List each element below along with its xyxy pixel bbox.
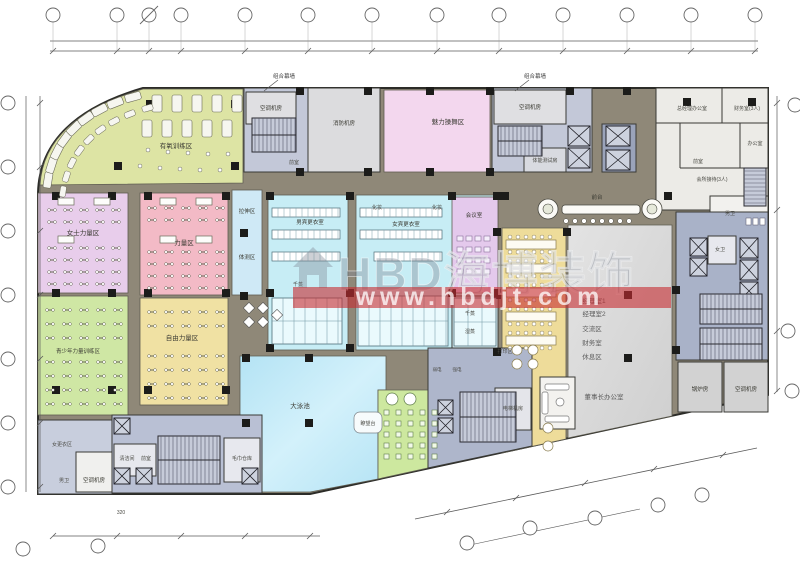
bike-marker [206, 152, 210, 156]
column-marker [683, 98, 691, 106]
desk-chair [516, 322, 520, 326]
equipment-mark [86, 323, 89, 326]
label-fire-room: 消防机房 [333, 119, 356, 127]
label-vestibule-ne: 前室 [693, 158, 703, 165]
equipment-mark [80, 309, 83, 312]
equipment-mark [64, 247, 67, 250]
equipment-mark [97, 389, 100, 392]
equipment-mark [222, 219, 225, 222]
label-men-wc-sw: 男卫 [59, 478, 69, 484]
grid-bubble [651, 498, 665, 512]
meeting-chair [484, 236, 490, 241]
label-gm-office: 总经理办公室 [677, 105, 707, 112]
equipment-mark [154, 325, 157, 328]
equipment-mark [165, 369, 168, 372]
equipment-mark [165, 219, 168, 222]
grid-bubble [1, 160, 15, 174]
equipment-mark [222, 207, 225, 210]
grid-bubble [301, 8, 315, 22]
desk-chair [524, 235, 528, 239]
column-marker [364, 168, 372, 176]
equipment-mark [188, 355, 191, 358]
treadmill [212, 95, 222, 112]
equipment-mark [102, 247, 105, 250]
leisure-chair [420, 443, 425, 448]
equipment-mark [112, 271, 115, 274]
grid-bubble [46, 8, 60, 22]
equipment-mark [188, 219, 191, 222]
column-marker [266, 344, 274, 352]
equipment-mark [46, 389, 49, 392]
equipment-mark [80, 375, 83, 378]
column-marker [426, 87, 434, 95]
stool [627, 219, 632, 224]
equipment-mark [222, 287, 225, 290]
desk-row [506, 336, 556, 345]
equipment-mark [165, 383, 168, 386]
equipment-mark [182, 397, 185, 400]
column-marker [240, 292, 248, 300]
equipment-mark [46, 309, 49, 312]
equipment-mark [205, 369, 208, 372]
grid-bubble [16, 542, 30, 556]
grid-bubble [91, 539, 105, 553]
round-table [512, 359, 522, 369]
equipment-mark [182, 275, 185, 278]
leisure-chair [420, 410, 425, 415]
column-marker [108, 289, 116, 297]
stool [564, 219, 569, 224]
equipment-mark [86, 209, 89, 212]
equipment-mark [114, 375, 117, 378]
equipment-mark [70, 221, 73, 224]
treadmill [222, 120, 232, 137]
equipment-mark [205, 251, 208, 254]
equipment-mark [69, 337, 72, 340]
equipment-mark [222, 325, 225, 328]
equipment-mark [165, 311, 168, 314]
desk-row [506, 312, 556, 321]
stool [609, 219, 614, 224]
equipment-mark [80, 271, 83, 274]
equipment-mark [148, 397, 151, 400]
label-ac-sw: 空调机房 [83, 476, 106, 484]
zone-label-stretch: 拉伸区 [239, 207, 256, 215]
zone-label-women-strength: 女士力量区 [67, 228, 100, 237]
stool [618, 219, 623, 224]
column-marker [623, 87, 631, 95]
column-marker [231, 162, 239, 170]
meeting-chair [475, 236, 481, 241]
round-table [528, 359, 538, 369]
equipment-mark [199, 355, 202, 358]
equipment-mark [86, 309, 89, 312]
round-table [512, 345, 522, 355]
equipment-mark [103, 323, 106, 326]
equipment-mark [148, 311, 151, 314]
equipment-mark [96, 283, 99, 286]
meeting-chair [466, 236, 472, 241]
label-strong-elec: 强电 [453, 366, 462, 373]
equipment-mark [171, 219, 174, 222]
zone-label-pool: 大泳池 [290, 401, 310, 410]
equipment-mark [205, 383, 208, 386]
treadmill [182, 120, 192, 137]
planter [647, 204, 657, 214]
equipment-mark [165, 207, 168, 210]
grid-bubble [556, 8, 570, 22]
equipment-mark [86, 271, 89, 274]
equipment-mark [205, 287, 208, 290]
equipment-mark [118, 283, 121, 286]
equipment-mark [154, 397, 157, 400]
equipment-mark [48, 221, 51, 224]
equipment-mark [118, 247, 121, 250]
bike-marker [158, 166, 162, 170]
watermark: HBD海博装饰 www.hbdjt.com [293, 247, 671, 311]
equipment-mark [154, 275, 157, 278]
column-marker [305, 354, 313, 362]
equipment-mark [102, 259, 105, 262]
zone-label-men-locker: 男宾更衣室 [296, 218, 324, 226]
leisure-chair [396, 432, 401, 437]
room-ac-sw [76, 452, 112, 492]
round-table [543, 423, 553, 433]
grid-bubble [588, 511, 602, 525]
equipment-mark [222, 369, 225, 372]
equipment-mark [199, 207, 202, 210]
machine [196, 236, 212, 243]
equipment-mark [199, 397, 202, 400]
equipment-mark [80, 323, 83, 326]
equipment-mark [97, 375, 100, 378]
wc-stall [746, 218, 751, 225]
equipment-mark [171, 207, 174, 210]
zone-label-meeting: 会议室 [466, 211, 483, 219]
equipment-mark [148, 275, 151, 278]
equipment-mark [112, 247, 115, 250]
grid-bubble [1, 288, 15, 302]
label-dry-sauna-w: 千蒸 [465, 310, 475, 317]
equipment-mark [70, 259, 73, 262]
column-marker [296, 87, 304, 95]
zone-label-youth: 青少年力量训练区 [56, 347, 101, 355]
equipment-mark [86, 403, 89, 406]
zone-label-body-test: 体测区 [239, 253, 256, 261]
column-marker [242, 419, 250, 427]
column-marker [305, 419, 313, 427]
desk-chair [532, 235, 536, 239]
equipment-mark [118, 259, 121, 262]
equipment-mark [205, 263, 208, 266]
equipment-mark [188, 369, 191, 372]
equipment-mark [69, 403, 72, 406]
equipment-mark [188, 263, 191, 266]
equipment-mark [54, 259, 57, 262]
umbrella-table [404, 393, 416, 405]
equipment-mark [182, 311, 185, 314]
equipment-mark [182, 325, 185, 328]
equipment-mark [199, 275, 202, 278]
equipment-mark [199, 219, 202, 222]
equipment-mark [120, 309, 123, 312]
leisure-chair [420, 421, 425, 426]
equipment-mark [188, 275, 191, 278]
equipment-mark [80, 337, 83, 340]
grid-bubble [748, 8, 762, 22]
room-fire [308, 88, 380, 172]
equipment-mark [52, 323, 55, 326]
equipment-mark [182, 263, 185, 266]
zone-label-aerobic: 有氧训练区 [160, 141, 193, 150]
equipment-mark [86, 389, 89, 392]
equipment-mark [216, 263, 219, 266]
equipment-mark [114, 323, 117, 326]
equipment-mark [165, 355, 168, 358]
column-marker [222, 386, 230, 394]
column-marker [114, 162, 122, 170]
label-office: 办公室 [747, 140, 762, 147]
equipment-mark [154, 355, 157, 358]
equipment-mark [70, 271, 73, 274]
equipment-mark [171, 397, 174, 400]
reception-counter [562, 205, 640, 214]
grid-bubble [460, 536, 474, 550]
equipment-mark [222, 355, 225, 358]
equipment-mark [188, 207, 191, 210]
column-marker [672, 286, 680, 294]
equipment-mark [222, 263, 225, 266]
bike-marker [186, 151, 190, 155]
column-marker [222, 289, 230, 297]
equipment-mark [63, 375, 66, 378]
equipment-mark [222, 251, 225, 254]
equipment-mark [69, 375, 72, 378]
equipment-mark [199, 251, 202, 254]
machine [58, 198, 74, 205]
treadmill [202, 120, 212, 137]
label-fitness-test: 体能测试房 [532, 157, 557, 164]
treadmill [192, 95, 202, 112]
equipment-mark [114, 337, 117, 340]
equipment-mark [182, 383, 185, 386]
grid-bubble [1, 96, 15, 110]
equipment-mark [96, 259, 99, 262]
equipment-mark [216, 219, 219, 222]
desk-chair [516, 331, 520, 335]
column-marker [563, 228, 571, 236]
grid-bubble [788, 98, 800, 112]
column-marker [52, 289, 60, 297]
locker-bank [272, 208, 340, 217]
equipment-mark [52, 403, 55, 406]
desk-chair [540, 346, 544, 350]
round-table [543, 441, 553, 451]
equipment-mark [120, 323, 123, 326]
desk-chair [524, 346, 528, 350]
machine [160, 198, 176, 205]
floor-plan: 有氧训练区 魅力操舞区 女士力量区 力量区 青少年力量训练区 自由力量区 拉伸区… [0, 0, 800, 562]
equipment-mark [54, 283, 57, 286]
column-marker [266, 289, 274, 297]
equipment-mark [182, 251, 185, 254]
zone-label-free-weights: 自由力量区 [166, 333, 199, 342]
column-marker [266, 192, 274, 200]
equipment-mark [46, 403, 49, 406]
equipment-mark [102, 209, 105, 212]
equipment-mark [205, 325, 208, 328]
grid-bubble [365, 8, 379, 22]
equipment-mark [199, 287, 202, 290]
equipment-mark [86, 283, 89, 286]
equipment-mark [86, 337, 89, 340]
leisure-chair [432, 421, 437, 426]
desk-chair [508, 322, 512, 326]
equipment-mark [86, 259, 89, 262]
equipment-mark [69, 309, 72, 312]
equipment-mark [165, 251, 168, 254]
equipment-mark [97, 337, 100, 340]
equipment-mark [199, 369, 202, 372]
note-curtain-wall-left: 组合幕墙 [273, 72, 296, 80]
stool [600, 219, 605, 224]
equipment-mark [63, 403, 66, 406]
label-ac-n: 空调机房 [519, 103, 542, 111]
grid-bubble [1, 480, 15, 494]
equipment-mark [80, 283, 83, 286]
equipment-mark [199, 325, 202, 328]
desk-chair [540, 322, 544, 326]
bike-marker [146, 148, 150, 152]
equipment-mark [188, 397, 191, 400]
column-marker [486, 87, 494, 95]
label-makeup-2: 化妆 [432, 204, 442, 211]
equipment-mark [80, 221, 83, 224]
equipment-mark [48, 259, 51, 262]
equipment-mark [165, 287, 168, 290]
label-cleaning: 清洁间 [119, 455, 134, 462]
zone-women-strength [38, 193, 128, 293]
note-dim-320: 320 [117, 510, 126, 516]
equipment-mark [216, 311, 219, 314]
grid-bubble [238, 8, 252, 22]
equipment-mark [96, 221, 99, 224]
equipment-mark [97, 403, 100, 406]
equipment-mark [154, 263, 157, 266]
equipment-mark [103, 309, 106, 312]
equipment-mark [205, 219, 208, 222]
sofa [545, 416, 569, 422]
label-towel-storage: 毛巾仓库 [232, 455, 252, 462]
label-elevator-machine: 电梯机房 [503, 405, 523, 412]
leisure-chair [384, 432, 389, 437]
equipment-mark [120, 361, 123, 364]
equipment-mark [171, 263, 174, 266]
label-lifeguard: 瞭望台 [360, 420, 375, 427]
grid-bubble [785, 384, 799, 398]
equipment-mark [70, 209, 73, 212]
equipment-mark [154, 207, 157, 210]
desk-chair [524, 331, 528, 335]
equipment-mark [171, 287, 174, 290]
equipment-mark [69, 361, 72, 364]
desk-chair [548, 322, 552, 326]
equipment-mark [171, 275, 174, 278]
equipment-mark [63, 361, 66, 364]
equipment-mark [171, 369, 174, 372]
equipment-mark [52, 337, 55, 340]
stool [591, 219, 596, 224]
equipment-mark [148, 219, 151, 222]
equipment-mark [114, 309, 117, 312]
column-marker [664, 192, 672, 200]
equipment-mark [222, 311, 225, 314]
equipment-mark [182, 369, 185, 372]
zone-free-weights [140, 298, 228, 405]
equipment-mark [120, 375, 123, 378]
equipment-mark [103, 337, 106, 340]
equipment-mark [96, 209, 99, 212]
bike-marker [166, 150, 170, 154]
equipment-mark [199, 311, 202, 314]
equipment-mark [188, 325, 191, 328]
equipment-mark [52, 309, 55, 312]
equipment-mark [80, 259, 83, 262]
label-makeup-1: 化妆 [372, 204, 382, 211]
grid-bubble [1, 224, 15, 238]
leisure-chair [432, 443, 437, 448]
equipment-mark [112, 259, 115, 262]
leisure-chair [408, 443, 413, 448]
equipment-mark [103, 403, 106, 406]
column-marker [426, 168, 434, 176]
grid-bubble [523, 521, 537, 535]
equipment-mark [46, 337, 49, 340]
equipment-mark [46, 375, 49, 378]
machine [196, 198, 212, 205]
label-finance-office: 财务室(3人) [734, 105, 760, 112]
equipment-mark [148, 251, 151, 254]
equipment-mark [64, 221, 67, 224]
equipment-mark [182, 355, 185, 358]
zone-label-strength: 力量区 [174, 238, 194, 247]
equipment-mark [63, 337, 66, 340]
equipment-mark [148, 263, 151, 266]
machine [94, 198, 110, 205]
label-chairman-office: 董事长办公室 [585, 392, 625, 401]
equipment-mark [154, 369, 157, 372]
equipment-mark [86, 221, 89, 224]
leisure-chair [420, 432, 425, 437]
equipment-mark [205, 275, 208, 278]
equipment-mark [80, 403, 83, 406]
equipment-mark [114, 389, 117, 392]
equipment-mark [216, 251, 219, 254]
bike-marker [138, 164, 142, 168]
equipment-mark [86, 361, 89, 364]
equipment-mark [102, 221, 105, 224]
label-weak-elec: 弱电 [433, 366, 442, 373]
column-marker [566, 87, 574, 95]
equipment-mark [165, 263, 168, 266]
column-marker [240, 229, 248, 237]
column-marker [493, 228, 501, 236]
equipment-mark [182, 207, 185, 210]
label-vestibule-s: 前室 [141, 455, 151, 462]
locker-bank [272, 230, 340, 239]
label-wet-sauna-w: 湿蒸 [465, 328, 475, 335]
column-marker [144, 386, 152, 394]
